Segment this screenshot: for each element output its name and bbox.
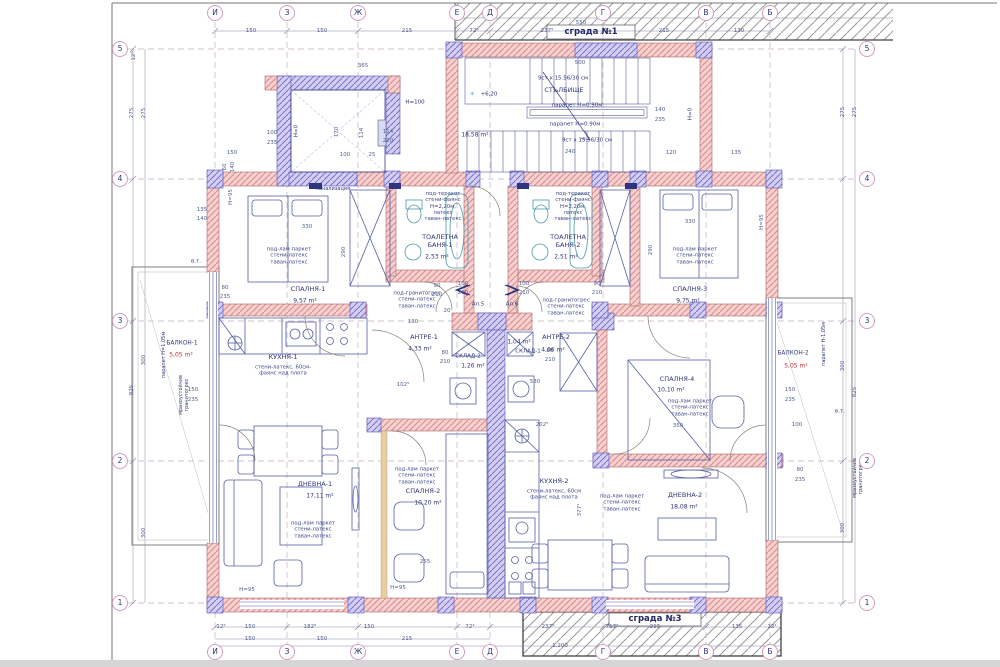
dining-table-2 xyxy=(532,540,628,590)
grid-number-right-3: 3 xyxy=(859,313,875,329)
grid-letter-top-Д: Д xyxy=(482,5,498,21)
tv-unit-2 xyxy=(664,470,718,478)
bed-2 xyxy=(446,434,488,594)
grid-number-right-5: 5 xyxy=(859,41,875,57)
floor-plan-sheet: сграда №1 сграда №3 9ст x 15.56/30 см СТ… xyxy=(0,0,1000,667)
grid-number-left-2: 2 xyxy=(112,453,128,469)
furniture-layer xyxy=(219,190,744,598)
dining-table-1 xyxy=(238,426,338,476)
kitchen-2 xyxy=(505,420,539,598)
grid-letter-top-Г: Г xyxy=(595,5,611,21)
sofa-2 xyxy=(645,518,729,592)
grid-letter-bottom-З: З xyxy=(279,644,295,660)
grid-letter-bottom-Г: Г xyxy=(595,644,611,660)
grid-letter-bottom-Б: Б xyxy=(762,644,778,660)
grid-number-left-1: 1 xyxy=(112,595,128,611)
kitchen-1 xyxy=(219,318,367,354)
grid-letter-top-З: З xyxy=(279,5,295,21)
chairs-bedroom2 xyxy=(394,502,424,582)
armchair-bedroom4 xyxy=(712,396,744,428)
sofa-1 xyxy=(224,480,322,586)
grid-number-left-4: 4 xyxy=(112,171,128,187)
grid-letter-top-И: И xyxy=(207,5,223,21)
grid-letter-bottom-Ж: Ж xyxy=(350,644,366,660)
grid-letter-top-Б: Б xyxy=(762,5,778,21)
grid-number-right-1: 1 xyxy=(859,595,875,611)
grid-letter-top-Ж: Ж xyxy=(350,5,366,21)
bed-1 xyxy=(248,196,328,282)
grid-number-right-2: 2 xyxy=(859,453,875,469)
grid-letter-top-Е: Е xyxy=(449,5,465,21)
bathroom-2-fixtures xyxy=(532,194,592,268)
plan-drawing xyxy=(0,0,1000,667)
grid-letter-bottom-Е: Е xyxy=(449,644,465,660)
sheet-bottom-bar xyxy=(0,660,1000,667)
balcony2-outline xyxy=(766,298,852,542)
grid-letter-top-В: В xyxy=(698,5,714,21)
bathroom-1-fixtures xyxy=(405,194,468,268)
bed-3 xyxy=(660,190,738,278)
neighbor-building-bottom xyxy=(523,612,781,656)
walls-layer xyxy=(207,42,783,613)
grid-number-right-4: 4 xyxy=(859,171,875,187)
grid-letter-bottom-В: В xyxy=(698,644,714,660)
grid-letter-bottom-Д: Д xyxy=(482,644,498,660)
neighbor-building-top xyxy=(455,3,893,40)
grid-letter-bottom-И: И xyxy=(207,644,223,660)
grid-number-left-5: 5 xyxy=(112,41,128,57)
grid-number-left-3: 3 xyxy=(112,313,128,329)
bed-4 xyxy=(628,360,710,460)
